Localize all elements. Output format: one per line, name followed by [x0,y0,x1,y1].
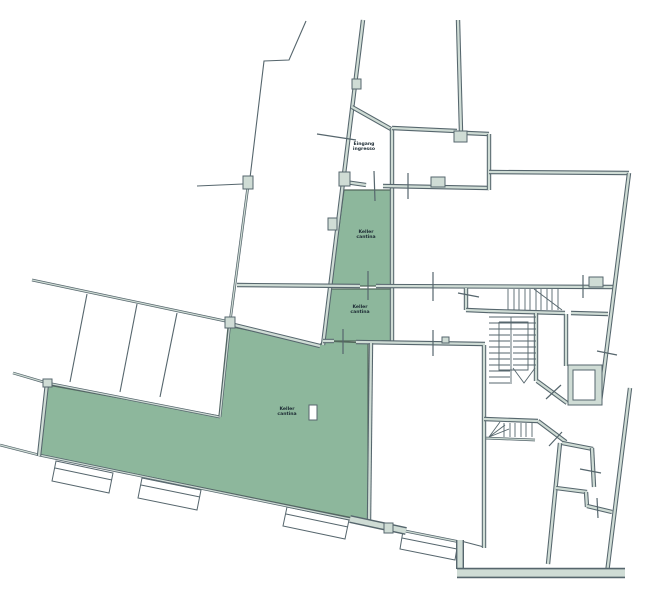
shaft-inner [573,370,595,400]
floor-plan-page: EingangingressoKellercantinaKellercantin… [0,0,653,600]
junction-box [225,317,235,328]
wall-pillar [328,218,337,230]
wall-core [537,381,567,403]
wall [461,541,484,547]
wall-core [548,443,560,564]
wall [70,294,87,382]
wall-core [237,285,360,286]
wall-core [352,107,391,129]
keller-3-label: Kellercantina [277,406,296,417]
wall-core [466,133,489,134]
junction-box [243,176,253,189]
wall [120,304,137,392]
wall-core [350,519,406,531]
wall-core [466,310,489,311]
junction-box [43,379,52,387]
wall-notch [589,277,603,287]
wall-joint [384,523,393,533]
wall-core [489,172,629,173]
wall-core [32,280,230,322]
door-tick [597,498,598,518]
junction-box [339,172,350,186]
wall-core [538,421,566,442]
wall-core [0,445,39,455]
wall [197,184,243,186]
keller-1-label: Kellercantina [356,229,375,240]
wall [250,21,306,178]
wall-pillar [352,79,361,89]
entrance-label: Eingangingresso [353,141,375,152]
wall-core [586,492,587,507]
keller-room-3 [40,327,368,521]
wall-notch [431,177,445,187]
wall-core [230,186,248,322]
wall-core [571,313,608,314]
column-in-keller-3 [309,405,317,420]
wall [160,313,177,397]
keller-2-label: Kellercantina [350,304,369,315]
wall-foot [454,131,467,142]
door-tick [580,469,601,473]
door-tick [458,293,479,297]
wall-notch [442,337,449,343]
floor-plan-svg: EingangingressoKellercantinaKellercantin… [0,0,653,600]
wall-core [607,388,630,573]
wall-core [376,286,615,287]
stair-outlines [499,322,535,383]
